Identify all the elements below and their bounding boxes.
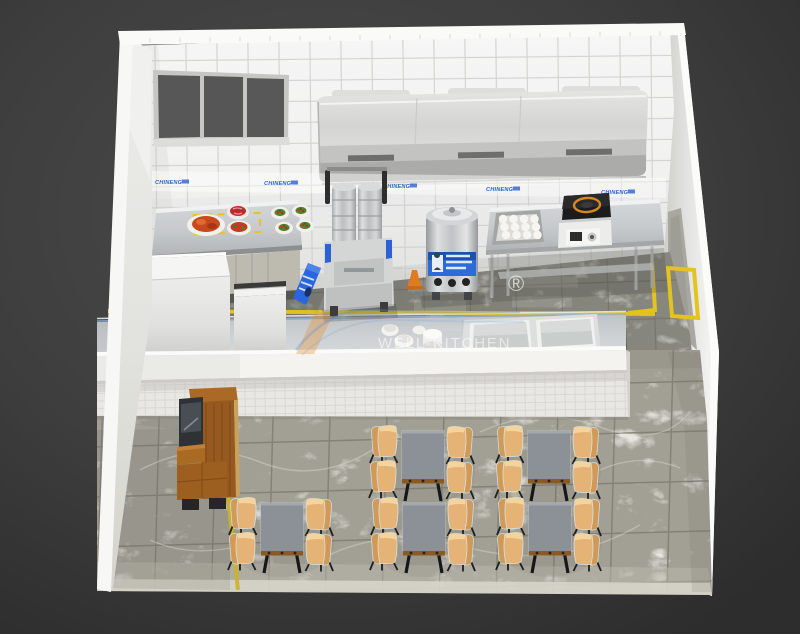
svg-text:®: ® bbox=[508, 271, 524, 296]
svg-text:CHINENG: CHINENG bbox=[264, 181, 292, 187]
svg-text:CHINENG: CHINENG bbox=[383, 184, 411, 190]
svg-text:CHINENG: CHINENG bbox=[155, 180, 183, 186]
svg-text:CHINENG: CHINENG bbox=[486, 187, 514, 193]
svg-text:WELL-KITCHEN: WELL-KITCHEN bbox=[378, 335, 511, 352]
